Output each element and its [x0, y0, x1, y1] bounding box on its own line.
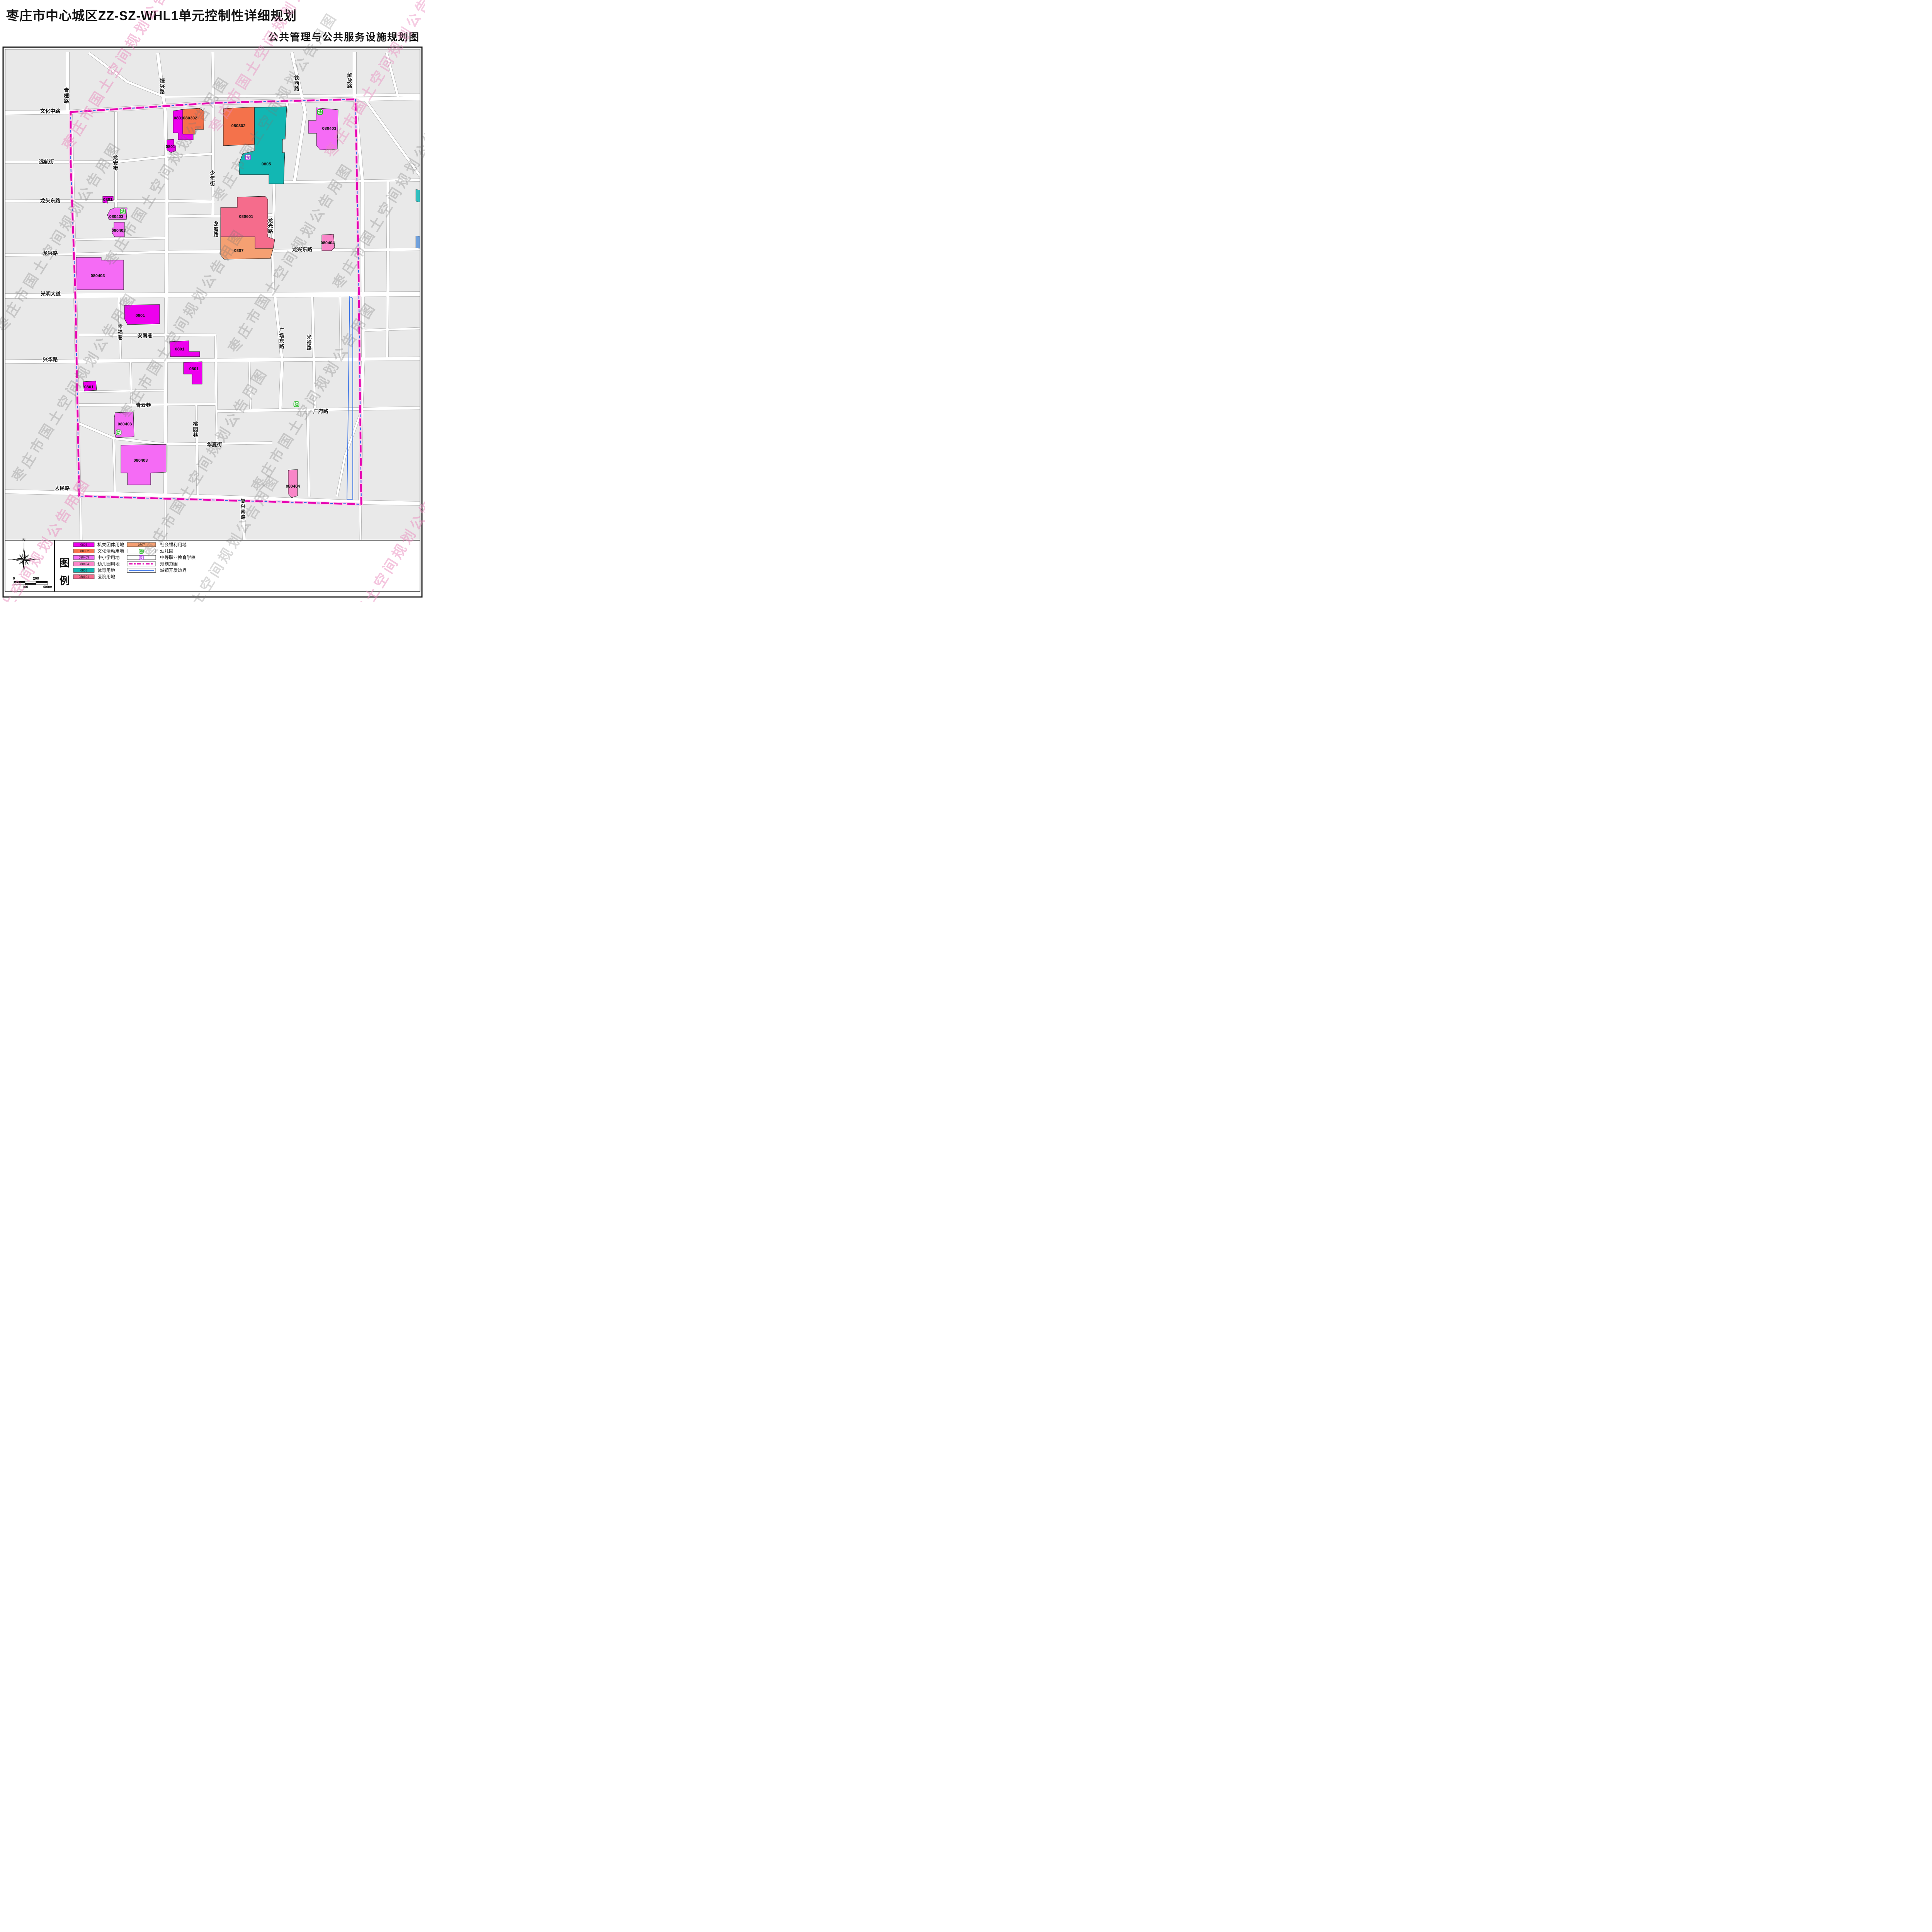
- road-label: 远航街: [39, 159, 54, 165]
- parcel-code-label: 080403: [134, 458, 148, 463]
- parcel-code-label: 0807: [234, 248, 243, 253]
- scale-label: 100: [22, 585, 28, 589]
- scale-label: 200: [33, 577, 39, 581]
- parcel-code-label: 080404: [286, 484, 301, 489]
- legend-title: 例: [60, 575, 70, 587]
- road-label: 光裕路: [306, 334, 312, 351]
- parcel-code-label: 080404: [321, 241, 335, 245]
- scale-segment: [25, 581, 36, 583]
- parcel-code-label: 080302: [183, 116, 197, 121]
- parcel-code-label: 0801: [84, 385, 94, 389]
- road-label: 解放路: [347, 72, 352, 89]
- icon-glyph: 幼: [117, 430, 121, 435]
- road-label: 光明大道: [40, 291, 61, 297]
- scale-segment: [36, 583, 48, 585]
- legend-item-label: 中小学用地: [97, 555, 120, 560]
- legend-item-label: 中等职业教育学校: [160, 555, 196, 560]
- road-label: 桃园巷: [192, 421, 198, 438]
- legend-item-label: 规划范围: [160, 561, 178, 566]
- parcel-code-label: 080403: [91, 274, 105, 278]
- road-label: 幸福巷: [117, 324, 123, 340]
- road-label: 广府路: [313, 408, 328, 414]
- road-label: 青云巷: [136, 402, 151, 408]
- parcel-code-label: 0805: [262, 162, 271, 167]
- legend-title: 图: [60, 557, 70, 569]
- road-label: 龙安街: [112, 155, 118, 171]
- road: [340, 297, 341, 359]
- parcel-code-label: 0801: [189, 367, 199, 371]
- parcel-code-label: 080403: [322, 126, 337, 131]
- road-label: 安南巷: [137, 333, 153, 338]
- legend-swatch-code: 080404: [79, 562, 89, 566]
- scale-segment: [14, 581, 25, 583]
- parcel-code-label: 0801: [166, 145, 175, 149]
- legend-swatch-code: 0807: [138, 543, 145, 547]
- legend-item-label: 机关团体用地: [97, 542, 124, 548]
- planning-map-page: 枣庄市中心城区ZZ-SZ-WHL1单元控制性详细规划 公共管理与公共服务设施规划…: [0, 0, 425, 602]
- road-label: 少年街: [209, 170, 215, 187]
- parcel-code-label: 080403: [109, 214, 124, 219]
- road: [131, 360, 131, 404]
- scale-segment: [14, 583, 25, 585]
- road-label: 龙庭路: [213, 221, 219, 238]
- edge-parcel-sliver: [416, 189, 420, 202]
- edge-parcel-sliver: [416, 236, 420, 248]
- parcel-code-label: 0801: [136, 313, 145, 318]
- icon-glyph: 幼: [140, 549, 143, 553]
- scale-segment: [25, 583, 36, 585]
- scale-bar: 0200100400m: [13, 577, 52, 589]
- north-arrow: N: [8, 538, 40, 576]
- road-label: 复兴南路: [240, 498, 246, 520]
- road-label: 华夏街: [207, 442, 222, 447]
- parcel-code-label: 0801: [175, 347, 184, 352]
- road: [387, 181, 388, 359]
- scale-label: 400m: [43, 585, 52, 589]
- map-canvas: 专幼幼幼幼文化中路青檀路振兴路铁西路解放路远航街龙安街少年街龙头东路龙光路龙庭路…: [5, 49, 420, 540]
- road-label: 兴华路: [43, 357, 58, 362]
- road-label: 广场东路: [279, 327, 284, 349]
- road: [213, 52, 213, 216]
- road-label: 人民路: [54, 485, 70, 491]
- icon-glyph: 幼: [318, 110, 322, 114]
- legend-swatch-code: 0801: [80, 543, 87, 547]
- legend-item-label: 城镇开发边界: [160, 568, 187, 573]
- legend-swatch-code: 0805: [80, 569, 87, 572]
- parcel-code-label: 0801: [174, 116, 183, 121]
- road-label: 龙头东路: [40, 198, 61, 204]
- parcel-code-label: 0801: [103, 197, 112, 202]
- legend-item-label: 体育用地: [97, 568, 115, 573]
- road-label: 青檀路: [64, 87, 69, 104]
- north-label: N: [22, 538, 26, 543]
- icon-glyph: 幼: [121, 209, 125, 214]
- road-label: 龙兴路: [43, 250, 58, 256]
- planning-map: 专幼幼幼幼文化中路青檀路振兴路铁西路解放路远航街龙安街少年街龙头东路龙光路龙庭路…: [0, 0, 425, 602]
- road-label: 铁西路: [294, 75, 299, 92]
- parcel-code-label: 080302: [231, 124, 246, 128]
- icon-glyph: 幼: [294, 402, 298, 406]
- legend-swatch-code: 080302: [79, 549, 89, 553]
- legend-item-label: 幼儿园用地: [97, 561, 120, 566]
- road: [360, 502, 361, 540]
- road: [80, 496, 81, 540]
- scale-label: 0: [13, 577, 15, 581]
- legend-swatch-code: 080403: [79, 556, 89, 560]
- legend-swatch-code: 080601: [79, 575, 89, 579]
- road-label: 龙光路: [267, 218, 273, 234]
- icon-glyph: 专: [140, 556, 143, 560]
- parcel-code-label: 080403: [112, 228, 126, 233]
- road-label: 龙兴东路: [292, 247, 313, 252]
- legend-item-label: 医院用地: [97, 574, 115, 580]
- legend-item-label: 幼儿园: [160, 549, 173, 554]
- scale-segment: [36, 581, 48, 583]
- legend: 图例0801机关团体用地080302文化活动用地080403中小学用地08040…: [60, 542, 196, 587]
- legend-item-label: 文化活动用地: [97, 548, 124, 554]
- legend-item-label: 社会福利用地: [160, 542, 187, 548]
- parcel-code-label: 080403: [118, 422, 132, 427]
- parcel-code-label: 080601: [239, 214, 253, 219]
- icon-glyph: 专: [246, 155, 250, 160]
- road-label: 振兴路: [160, 78, 165, 95]
- parcel-080404: [288, 469, 298, 498]
- road-label: 文化中路: [40, 108, 61, 114]
